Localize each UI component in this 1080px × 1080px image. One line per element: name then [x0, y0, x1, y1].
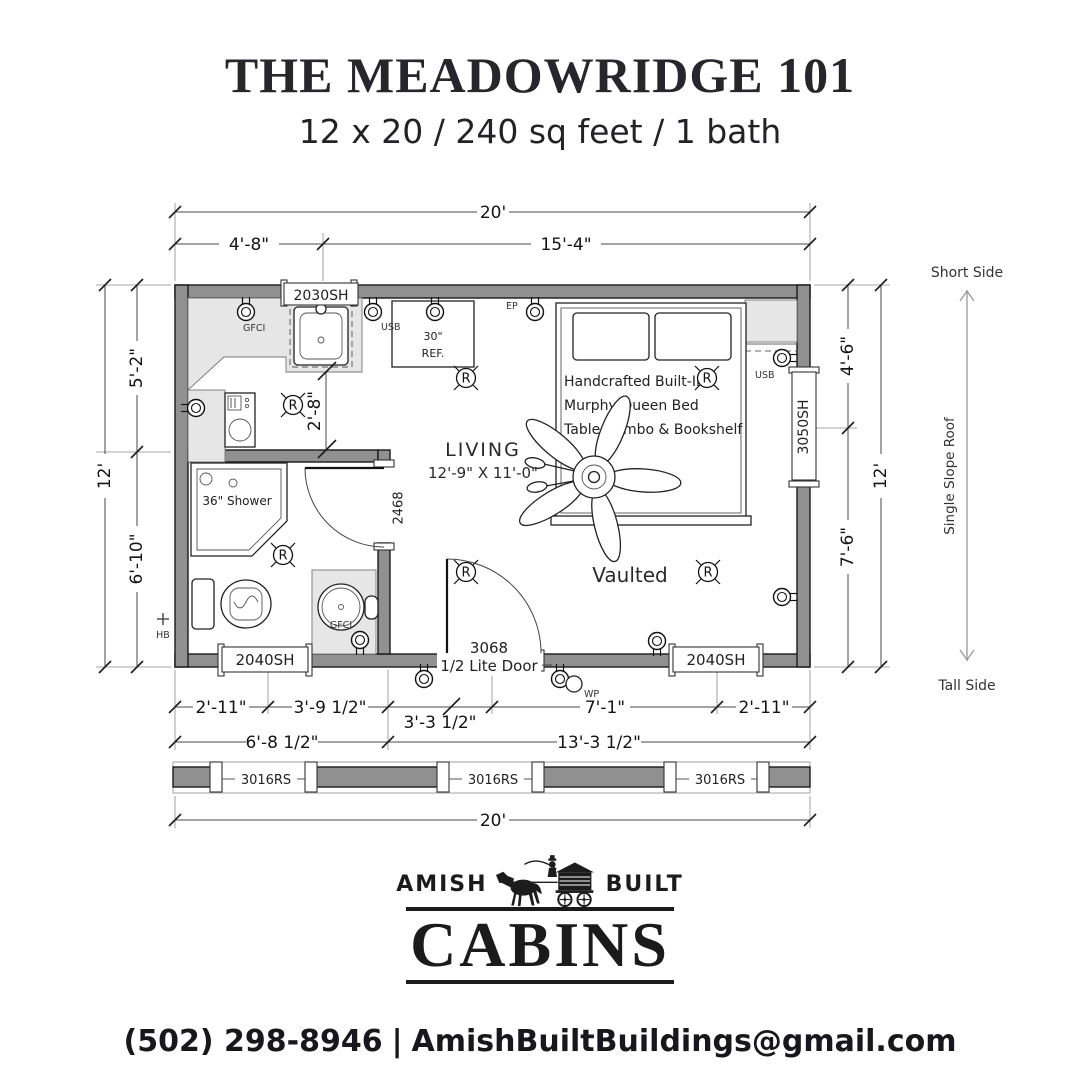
entry-door: 3068 1/2 Lite Door	[437, 559, 552, 676]
transom-window-label: 3016RS	[241, 773, 291, 788]
bed-note-line2: Murphy Queen Bed	[564, 398, 699, 414]
brand-logo: AMISH	[0, 853, 1080, 984]
range-icon	[225, 393, 255, 447]
phone-number: (502) 298-8946	[124, 1024, 383, 1059]
dim-bot-sub2: 13'-3 1/2"	[557, 733, 641, 753]
window-bottom-left-label: 2040SH	[236, 651, 295, 669]
kitchen-sink	[294, 304, 348, 365]
dim-left-seg1: 5'-2"	[127, 348, 147, 388]
recessed-light-icon	[695, 366, 719, 390]
logo-top-row: AMISH	[396, 853, 684, 907]
short-side-label: Short Side	[931, 265, 1003, 281]
usb-label-right: USB	[755, 370, 775, 381]
gfci-label-bath: GFCI	[330, 620, 352, 631]
window-2040SH-right: 2040SH	[669, 644, 763, 676]
window-2030SH: 2030SH	[281, 280, 358, 306]
dim-bot-seg5: 2'-11"	[738, 698, 789, 718]
outlet-icon	[774, 350, 798, 367]
floor-plan: R	[0, 180, 1080, 880]
dim-bot-sub1: 6'-8 1/2"	[245, 733, 318, 753]
window-2040SH-left: 2040SH	[218, 644, 312, 676]
kitchen: 30" REF. 2'-8"	[188, 298, 474, 462]
hose-bib: HB	[156, 613, 170, 641]
pillow	[573, 313, 649, 360]
outlet-icon	[365, 297, 382, 321]
dim-bot-seg1: 2'-11"	[195, 698, 246, 718]
wp-cover-icon	[566, 676, 582, 692]
logo-divider-bottom	[406, 980, 674, 984]
page-subtitle: 12 x 20 / 240 sq feet / 1 bath	[0, 112, 1080, 151]
recessed-light-icon	[696, 560, 720, 584]
dim-bot-seg2: 3'-9 1/2"	[293, 698, 366, 718]
hb-label: HB	[156, 630, 170, 641]
separator: |	[392, 1024, 403, 1059]
entry-door-size: 3068	[470, 639, 508, 657]
transom-strip: 3016RS 3016RS 3016RS	[173, 762, 810, 793]
bed-note-line1: Handcrafted Built-In	[564, 374, 705, 390]
outlet-icon	[527, 297, 544, 321]
contact-info: (502) 298-8946|AmishBuiltBuildings@gmail…	[0, 1024, 1080, 1059]
logo-word-cabins: CABINS	[410, 912, 670, 977]
dim-right-total: 12'	[871, 463, 891, 489]
dim-top-seg1: 4'-8"	[229, 235, 269, 255]
window-bottom-right-label: 2040SH	[687, 651, 746, 669]
kitchen-clearance-dim: 2'-8"	[305, 362, 336, 458]
window-right-label: 3050SH	[796, 399, 812, 454]
dim-kitchen-clear: 2'-8"	[305, 391, 325, 431]
recessed-light-icon	[271, 543, 295, 567]
dim-right-seg2: 7'-6"	[838, 527, 858, 567]
pillow	[655, 313, 731, 360]
roof-annotation: Short Side Single Slope Roof Tall Side	[931, 265, 1003, 694]
bath-door: 2468	[305, 460, 407, 550]
single-slope-roof-label: Single Slope Roof	[942, 416, 958, 535]
closet	[745, 300, 797, 351]
living-label: LIVING	[445, 439, 521, 461]
tall-side-label: Tall Side	[937, 678, 995, 694]
recessed-light-icon	[454, 366, 478, 390]
window-3050SH: 3050SH	[789, 367, 819, 487]
entry-door-type: 1/2 Lite Door	[440, 657, 538, 675]
dim-bot-seg3: 3'-3 1/2"	[403, 713, 476, 733]
fridge-size-label: 30"	[423, 330, 442, 343]
dim-top-total: 20'	[480, 203, 506, 223]
shower-label: 36" Shower	[202, 494, 271, 508]
page-title: THE MEADOWRIDGE 101	[0, 0, 1080, 104]
dim-top-seg2: 15'-4"	[540, 235, 591, 255]
toilet-icon	[192, 579, 271, 629]
shower: 36" Shower	[191, 463, 287, 556]
dim-bot-total: 20'	[480, 811, 506, 831]
transom-window-label: 3016RS	[695, 773, 745, 788]
bed-note-line3: Table Combo & Bookshelf	[563, 422, 743, 438]
recessed-light-icon	[281, 393, 305, 417]
living-size-label: 12'-9" X 11'-0"	[428, 464, 538, 482]
dim-bot-seg4: 7'-1"	[585, 698, 625, 718]
outlet-icon	[649, 633, 666, 657]
email-address: AmishBuiltBuildings@gmail.com	[412, 1024, 957, 1059]
ep-label: EP	[506, 301, 518, 312]
logo-word-amish: AMISH	[396, 872, 487, 907]
flyer: THE MEADOWRIDGE 101 12 x 20 / 240 sq fee…	[0, 0, 1080, 1080]
gfci-label: GFCI	[243, 323, 265, 334]
window-top-label: 2030SH	[293, 288, 348, 304]
horse-and-cabin-wagon-icon	[494, 853, 600, 909]
recessed-light-icon	[454, 560, 478, 584]
dim-left-seg2: 6'-10"	[127, 533, 147, 584]
bath-door-size: 2468	[392, 491, 407, 524]
wp-label: WP	[584, 689, 599, 700]
dim-right-seg1: 4'-6"	[838, 336, 858, 376]
logo-word-built: BUILT	[606, 872, 684, 907]
usb-label: USB	[381, 322, 401, 333]
fridge-label: REF.	[422, 347, 445, 360]
transom-window-label: 3016RS	[468, 773, 518, 788]
outlet-icon	[774, 589, 798, 606]
dim-left-total: 12'	[95, 463, 115, 489]
vaulted-label: Vaulted	[592, 563, 667, 587]
